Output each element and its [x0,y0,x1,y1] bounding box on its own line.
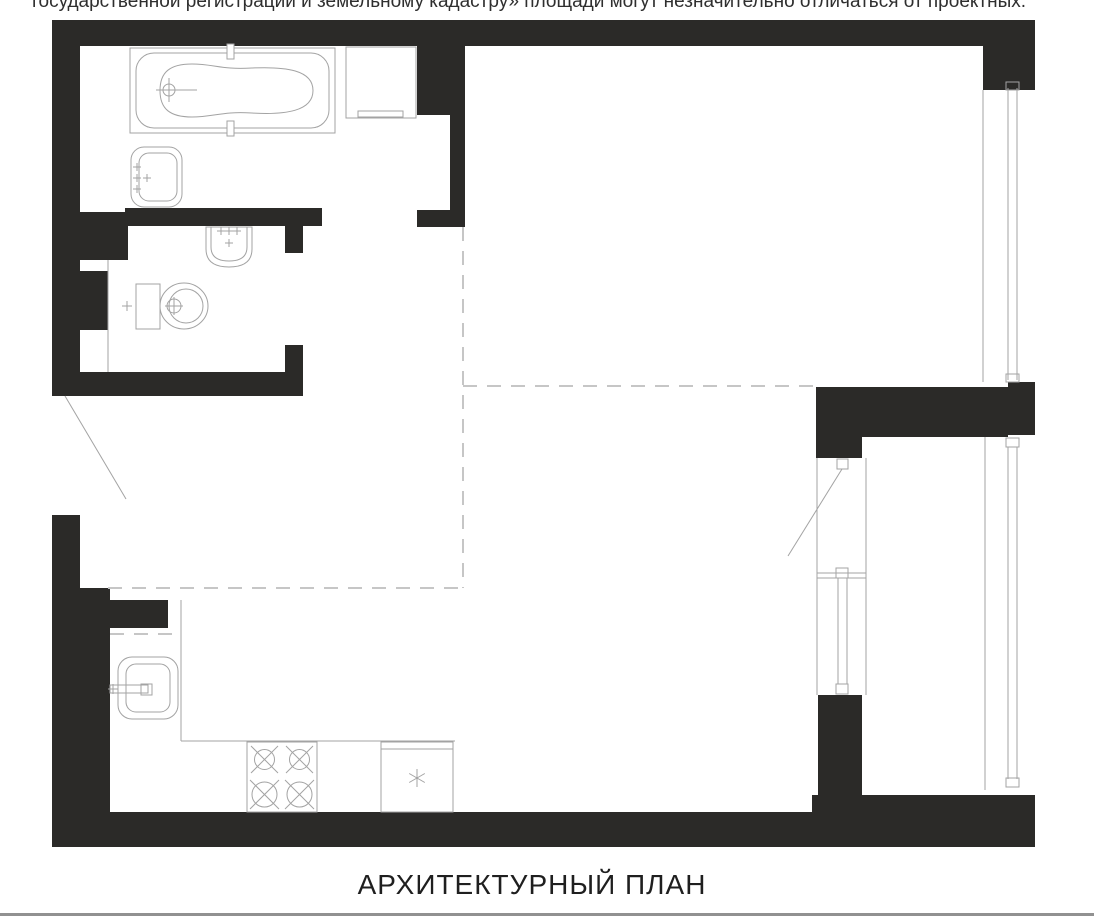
wall-bath-corner-block [80,212,128,260]
balcony-door-window-unit [788,458,866,695]
wall-kitchen-stub [110,600,168,628]
stove-fixture [247,742,317,812]
window-upper-right [983,82,1019,382]
bathtub-fixture [130,44,335,136]
balcony-window [836,568,848,694]
balcony-door-swing [788,469,842,556]
wall-wc-bottom [52,372,303,396]
kitchen-counter [181,600,455,741]
wall-bathroom-right [450,115,465,227]
floor-plan [0,0,1094,924]
wall-loggia-top [816,387,1008,437]
wall-bathroom-foot [417,210,450,227]
bathtub-overflow-tick-top [227,44,234,59]
wall-top [52,20,1035,46]
wc-basin-fixture [206,227,252,267]
wall-left-mid [52,515,80,588]
toilet-fixture [122,283,208,329]
faucet-cross-marks [133,163,151,193]
snowflake-icon [409,769,425,787]
wall-top-right-corner [983,20,1035,90]
wall-wc-door-stub-bottom [285,345,303,372]
kitchen-sink-fixture [108,657,178,719]
page: государственной регистрации и земельному… [0,0,1094,924]
entrance-door-swing [65,396,126,499]
washing-machine-fixture [346,47,416,118]
wall-bathroom-shaft-block [417,20,465,115]
burner-top-right [286,746,313,773]
faucet-cross-marks [217,227,241,247]
wall-left-lower [52,588,110,847]
burner-bottom-left [250,780,279,809]
plan-title: АРХИТЕКТУРНЫЙ ПЛАН [0,869,1094,901]
walls [52,20,1035,847]
wall-wc-door-stub-top [285,226,303,253]
window-lower-right [985,437,1019,790]
bathroom-sink-fixture [131,147,182,207]
wall-wc-left-pier [80,271,108,330]
zone-divider-dashed [108,227,816,634]
wall-bottom-left [52,812,812,847]
wall-loggia-column [818,695,862,805]
burner-bottom-right [285,780,314,809]
wall-wc-top [125,208,322,226]
bottom-divider-line [0,913,1094,916]
wall-left-upper [52,20,80,395]
balcony-door-hinge [837,459,848,469]
fridge-fixture [381,742,453,812]
wall-loggia-top-thick [816,437,862,458]
burner-top-left [251,746,278,773]
bathtub-overflow-tick-bottom [227,121,234,136]
wall-right-window-stub [1008,382,1035,435]
